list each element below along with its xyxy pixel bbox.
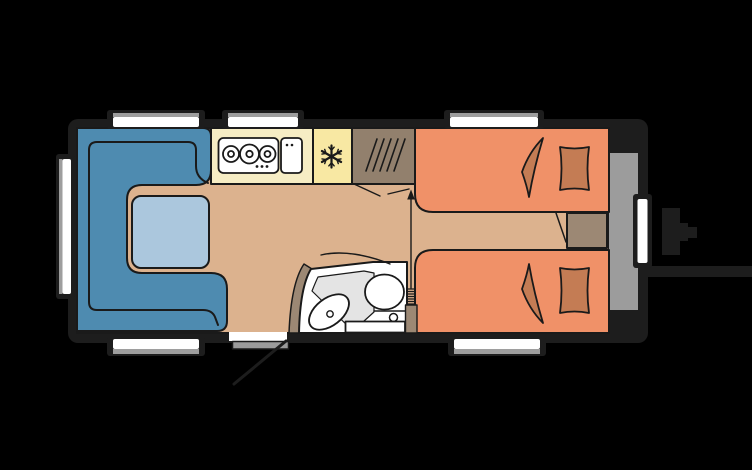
window-top-3 xyxy=(444,110,544,129)
floorplan-svg xyxy=(0,0,752,470)
dinette-table xyxy=(132,196,209,268)
pillow xyxy=(560,268,589,313)
window-left xyxy=(56,154,75,299)
window-right xyxy=(633,194,652,268)
wardrobe xyxy=(352,128,415,184)
toilet xyxy=(365,275,404,310)
flush-knob xyxy=(390,314,398,322)
heater-cabinet xyxy=(406,305,418,333)
stove-control-dots xyxy=(256,165,269,168)
burner-icon xyxy=(223,146,239,162)
window-bottom-2 xyxy=(448,336,546,356)
window-top-2 xyxy=(222,110,304,129)
burner-icon xyxy=(240,145,259,164)
window-bottom-1 xyxy=(107,336,205,356)
drawbar-beam xyxy=(648,266,752,277)
burner-icon xyxy=(260,146,276,162)
basin-drain xyxy=(327,311,333,317)
nightstand xyxy=(567,213,607,248)
caravan-floorplan xyxy=(0,0,752,470)
window-top-1 xyxy=(107,110,205,129)
shower-tray xyxy=(346,322,406,333)
pillow xyxy=(560,147,589,190)
entry-door-opening xyxy=(229,332,287,341)
kitchen-sink xyxy=(281,138,302,173)
heater-coil-icon xyxy=(407,289,416,304)
